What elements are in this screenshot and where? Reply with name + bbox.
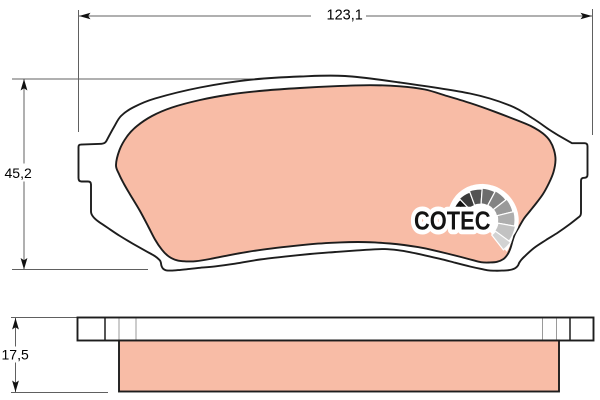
svg-text:17,5: 17,5 bbox=[2, 347, 29, 363]
svg-text:123,1: 123,1 bbox=[327, 8, 363, 24]
svg-text:45,2: 45,2 bbox=[5, 165, 32, 181]
svg-text:COTEC: COTEC bbox=[414, 206, 491, 236]
